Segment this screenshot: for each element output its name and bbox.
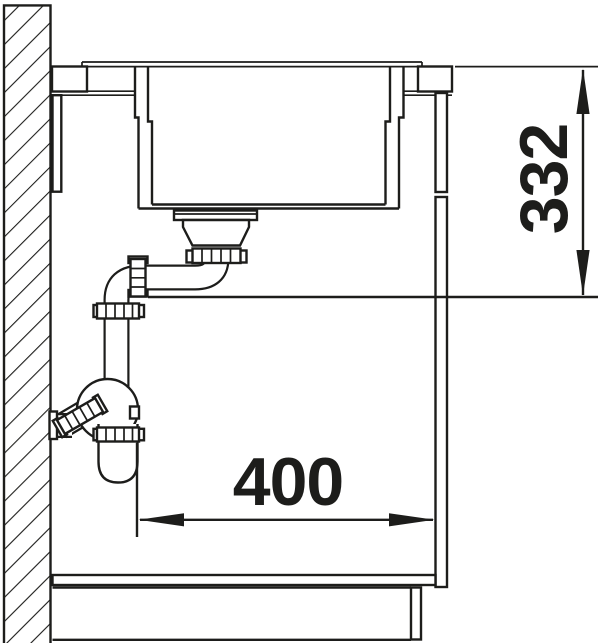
bowl-right-wall-outer bbox=[399, 67, 404, 209]
bowl-left-wall-inner bbox=[148, 67, 152, 205]
technical-drawing: 400 332 bbox=[0, 0, 600, 643]
cabinet-front-rail bbox=[436, 93, 448, 192]
bowl-bottom bbox=[139, 205, 400, 209]
arrow-up-icon bbox=[576, 69, 589, 115]
plinth-front bbox=[411, 588, 421, 640]
drawing-canvas bbox=[0, 0, 600, 643]
wall-hatch bbox=[4, 5, 51, 643]
drain-strainer bbox=[174, 211, 257, 246]
trap-clip bbox=[130, 407, 139, 419]
sink-rim bbox=[82, 62, 422, 67]
worktop-left-block bbox=[52, 67, 87, 92]
cabinet-side-panel bbox=[53, 95, 62, 192]
cabinet-bottom-shelf bbox=[53, 575, 436, 585]
dimension-label-400: 400 bbox=[223, 447, 353, 517]
cabinet-front-panel bbox=[436, 197, 448, 587]
trap-nut-lower bbox=[94, 428, 145, 442]
dimension-label-332: 332 bbox=[509, 114, 579, 244]
wall-section bbox=[4, 5, 51, 643]
arrow-down-icon bbox=[576, 250, 589, 296]
worktop-right-block bbox=[418, 67, 452, 92]
pipe-nut-upper bbox=[94, 304, 145, 319]
strainer-flange bbox=[174, 211, 257, 221]
arrow-left-icon bbox=[139, 513, 185, 526]
bowl-right-wall-inner bbox=[386, 67, 391, 205]
strainer-nut bbox=[187, 249, 247, 264]
sink-bowl bbox=[82, 62, 422, 209]
pipe-corner-nut bbox=[129, 257, 148, 297]
worktop bbox=[52, 67, 452, 96]
arrow-right-icon bbox=[389, 513, 435, 526]
strainer-body bbox=[183, 220, 249, 246]
bowl-left-wall-outer bbox=[135, 67, 139, 209]
